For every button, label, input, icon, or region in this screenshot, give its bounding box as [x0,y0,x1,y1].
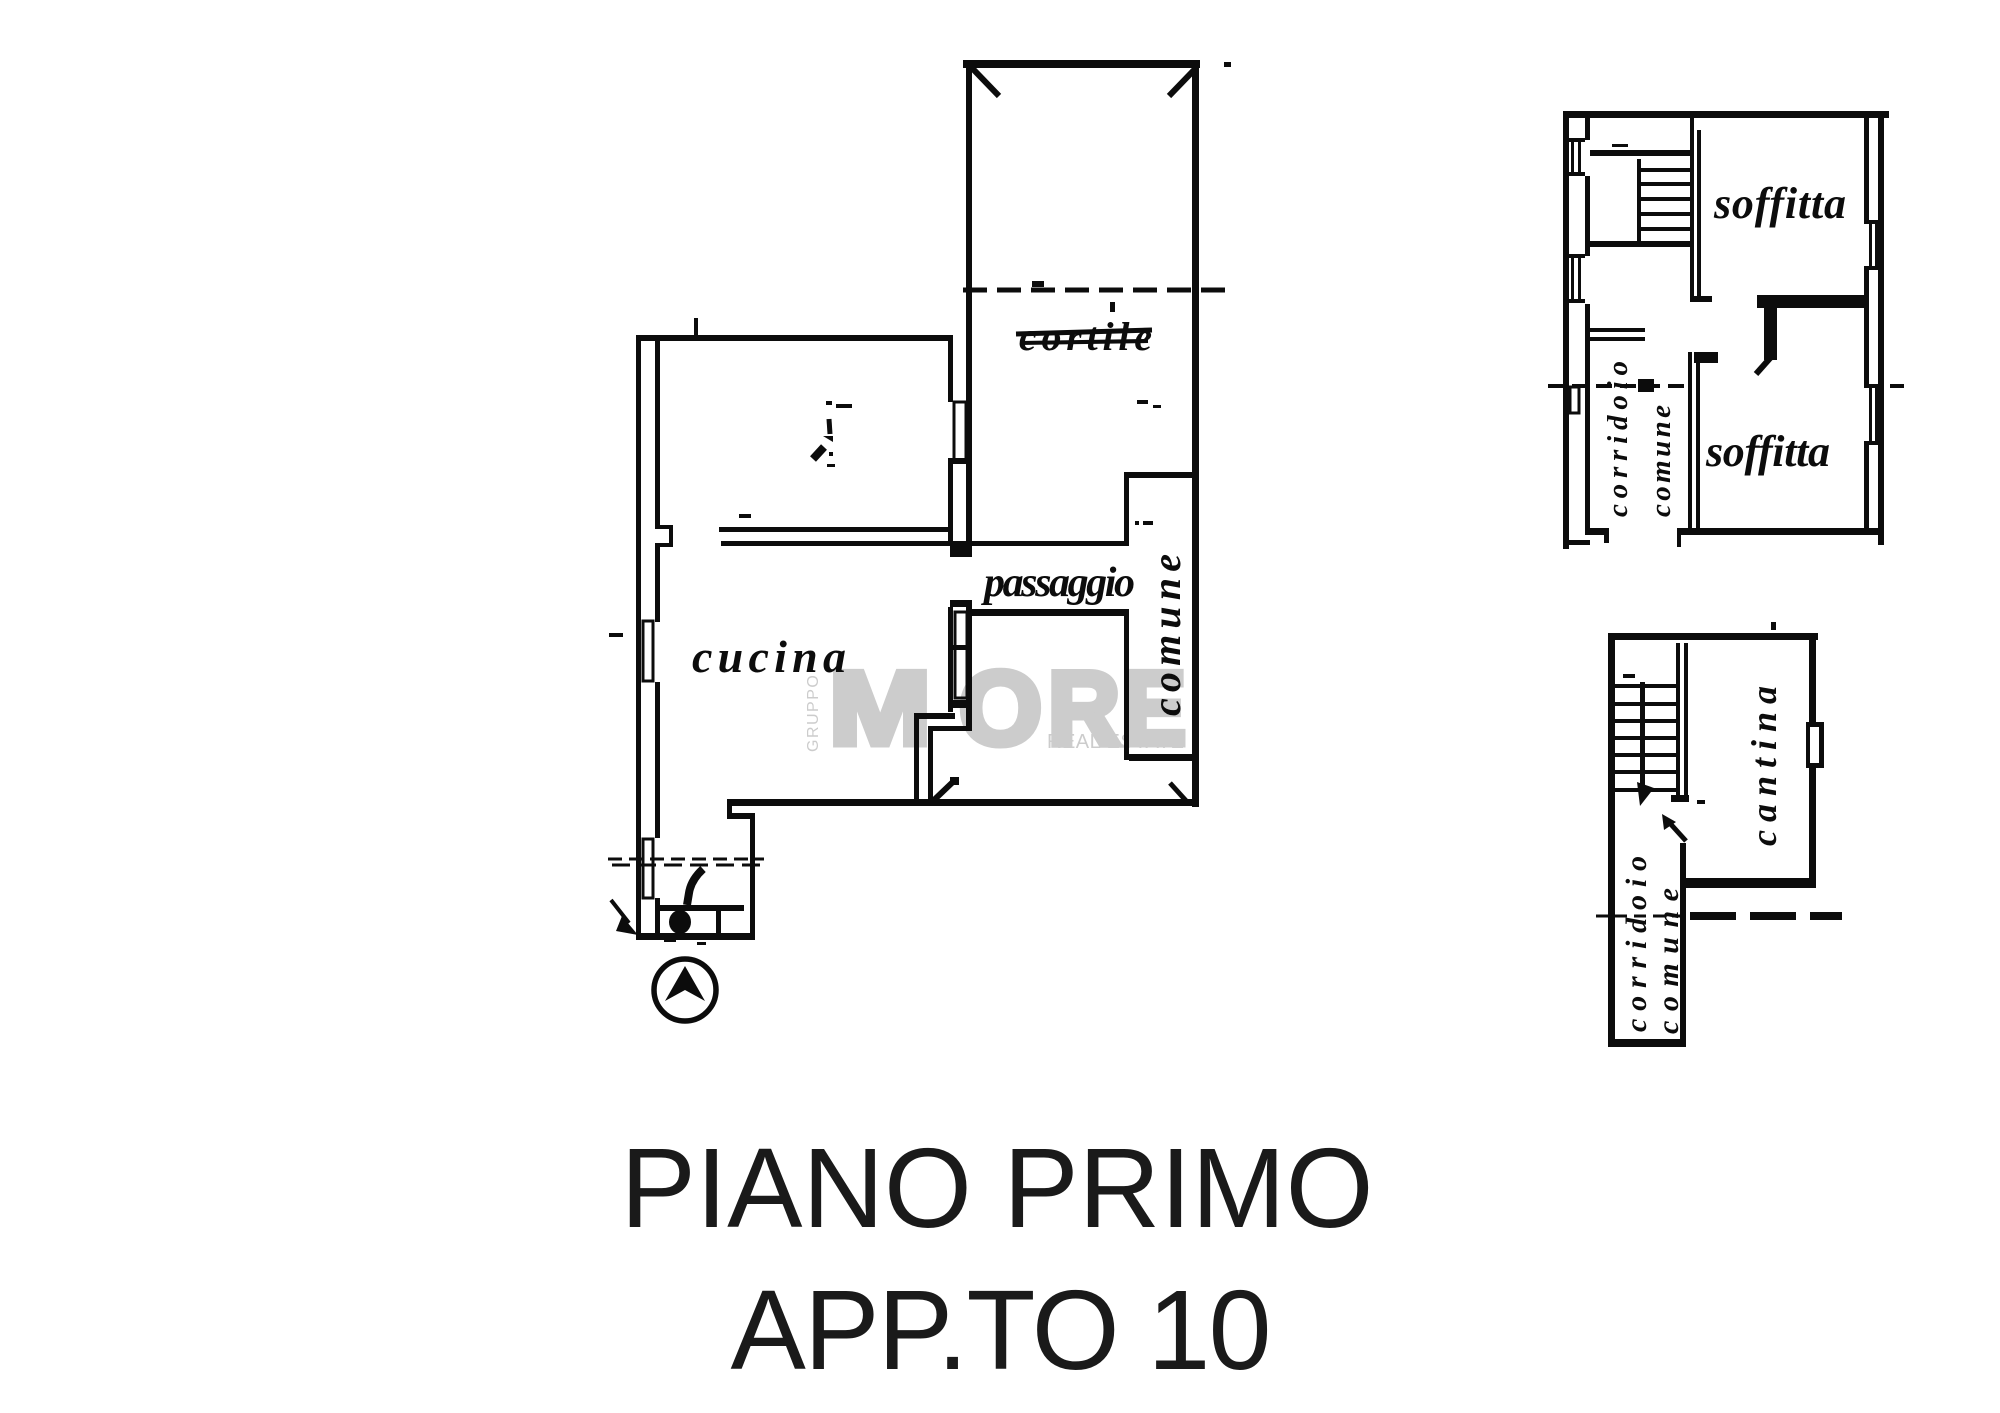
svg-text:soffitta: soffitta [1705,427,1830,476]
svg-text:REAL ESTATE: REAL ESTATE [1047,731,1184,753]
svg-text:PIANO PRIMO: PIANO PRIMO [621,1125,1374,1251]
svg-text:GRUPPO: GRUPPO [805,674,822,752]
svg-text:corridoio: corridoio [1620,856,1653,1032]
svg-text:comune: comune [1645,405,1677,517]
svg-text:passaggio: passaggio [981,560,1135,606]
svg-text:corridoio: corridoio [1602,361,1634,517]
svg-text:APP.TO 10: APP.TO 10 [731,1267,1272,1393]
svg-text:soffitta: soffitta [1713,179,1846,228]
svg-text:cucina: cucina [692,631,850,682]
svg-text:comune: comune [1144,554,1189,716]
